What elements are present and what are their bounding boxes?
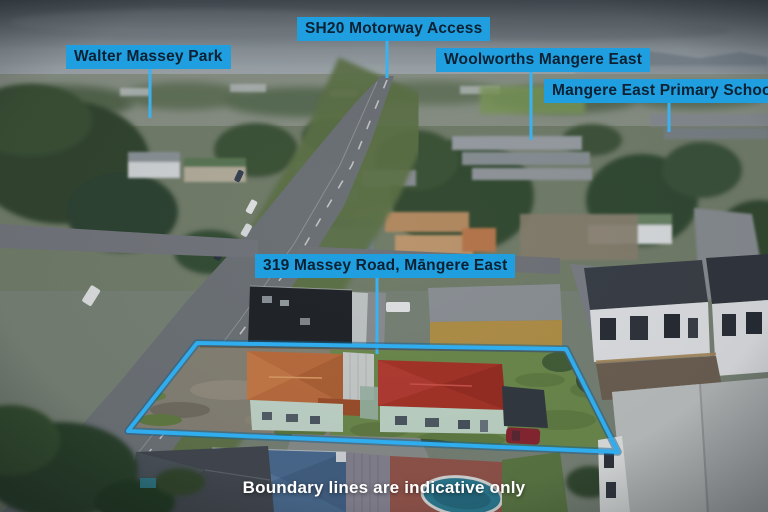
label-walter-massey-park: Walter Massey Park [66, 45, 231, 69]
label-sh20-motorway-access: SH20 Motorway Access [297, 17, 490, 41]
label-mangere-east-primary-school: Mangere East Primary School [544, 79, 768, 103]
label-woolworths-mangere-east: Woolworths Mangere East [436, 48, 650, 72]
label-property-address: 319 Massey Road, Māngere East [255, 254, 515, 278]
boundary-disclaimer-text: Boundary lines are indicative only [0, 478, 768, 498]
aerial-photo: Walter Massey Park SH20 Motorway Access … [0, 0, 768, 512]
